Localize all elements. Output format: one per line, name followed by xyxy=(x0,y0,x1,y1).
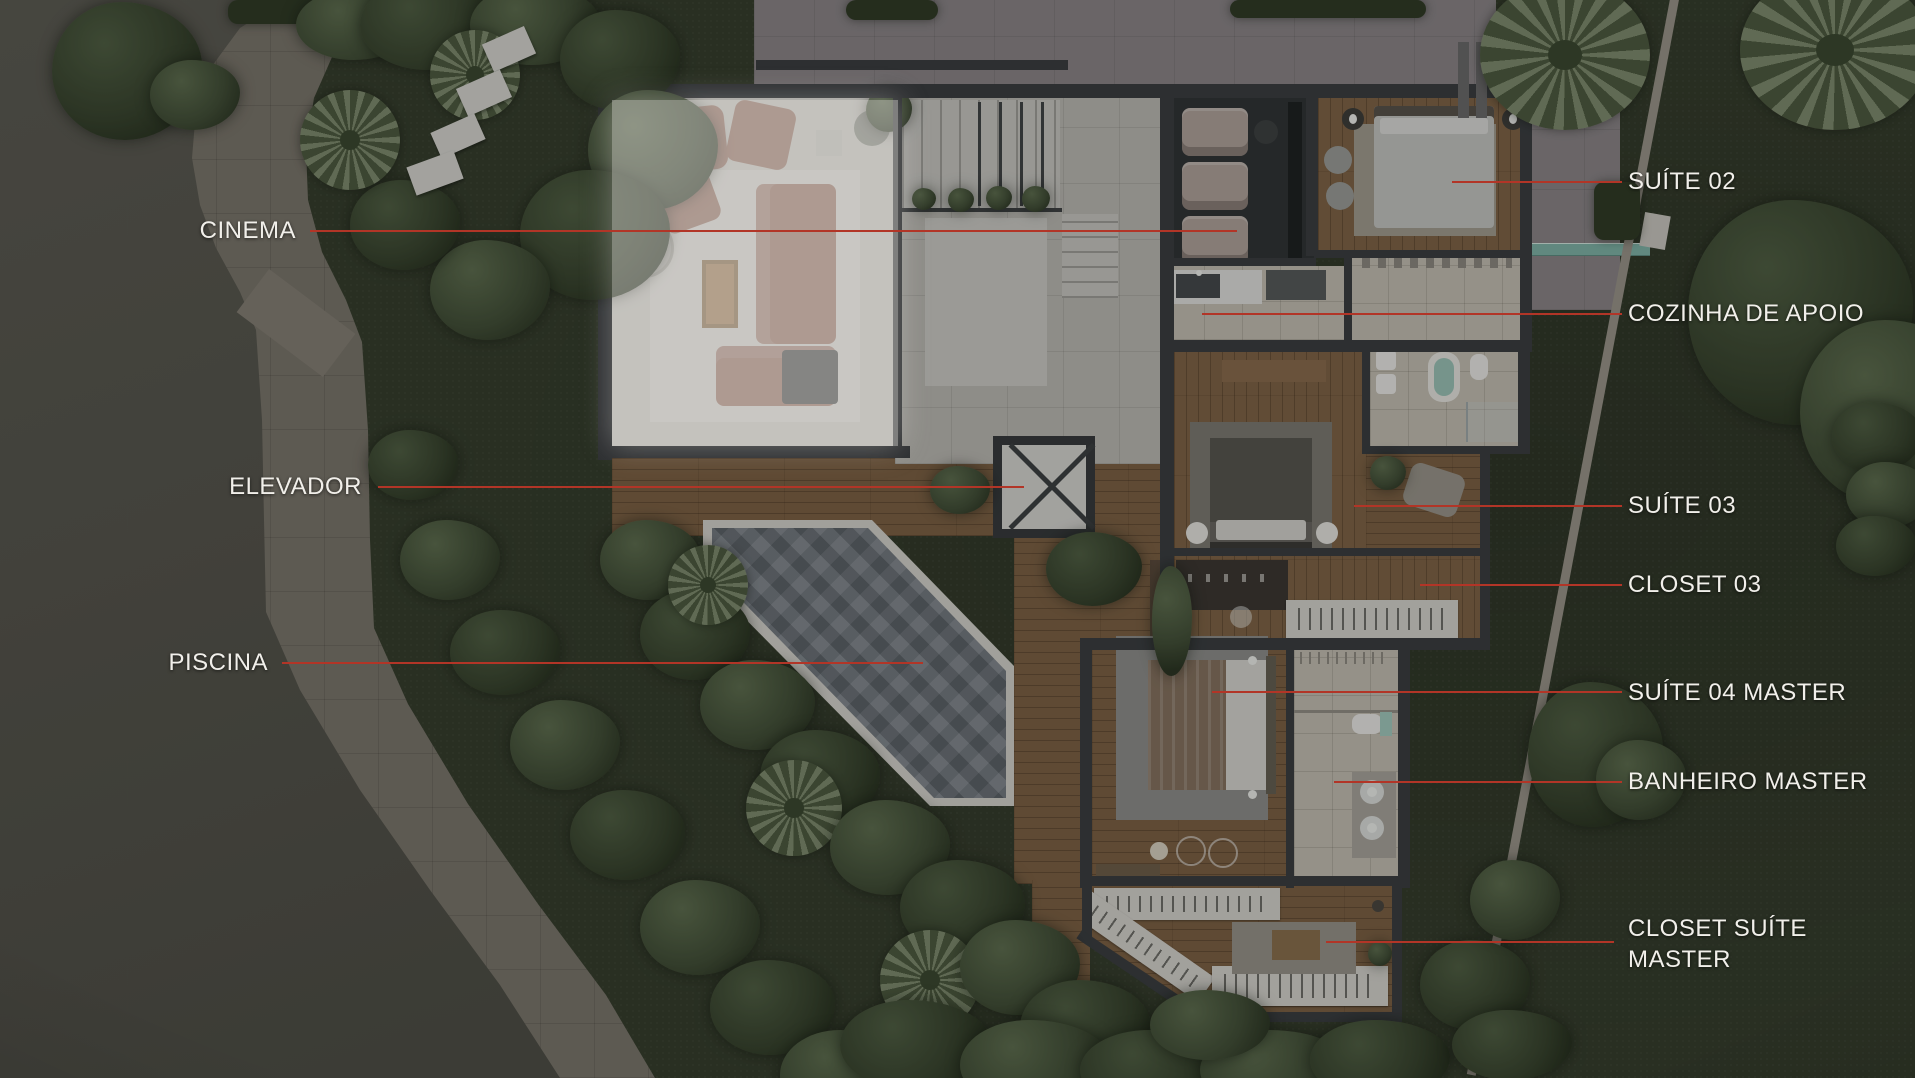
bathtub-water xyxy=(1434,358,1454,396)
accessory xyxy=(1372,900,1384,912)
room-cinema xyxy=(1172,98,1314,268)
leader-line-closet-03 xyxy=(1420,584,1622,586)
nightstand xyxy=(1186,522,1208,544)
ottoman xyxy=(782,350,838,404)
label-elevador: ELEVADOR xyxy=(142,471,362,502)
label-suite-03: SUÍTE 03 xyxy=(1628,490,1736,521)
label-cozinha-de-apoio: COZINHA DE APOIO xyxy=(1628,298,1864,329)
wall xyxy=(1518,340,1530,452)
palm-tree xyxy=(300,90,400,190)
wall xyxy=(1174,548,1486,556)
room-bath-03 xyxy=(1370,346,1526,448)
leader-line-piscina xyxy=(282,662,923,664)
wall xyxy=(1392,876,1402,1018)
wall xyxy=(1398,650,1410,888)
room-master-bath xyxy=(1294,650,1400,886)
label-suite-04-master: SUÍTE 04 MASTER xyxy=(1628,677,1846,708)
pouf xyxy=(1324,146,1352,174)
mattress xyxy=(1226,660,1270,790)
label-piscina: PISCINA xyxy=(68,647,268,678)
hall-suites xyxy=(1350,256,1526,342)
stair-lower-flight xyxy=(1062,214,1118,298)
sconce xyxy=(1248,790,1257,799)
label-banheiro-master: BANHEIRO MASTER xyxy=(1628,766,1868,797)
shelf-items xyxy=(1362,258,1512,268)
wall xyxy=(1160,340,1532,352)
leader-line-elevador xyxy=(378,486,1024,488)
leader-line-cinema xyxy=(310,230,1237,232)
leader-line-suite-03 xyxy=(1354,505,1622,507)
kitchen-sink xyxy=(1176,274,1220,298)
stool xyxy=(1150,842,1168,860)
bed xyxy=(1148,660,1270,790)
hedge xyxy=(846,0,938,20)
wall xyxy=(598,446,910,458)
console xyxy=(1222,360,1326,382)
vanity-desk xyxy=(1176,560,1288,610)
room-suite-04-master xyxy=(1092,650,1286,886)
leader-line-closet-suite-master xyxy=(1326,941,1614,943)
sink xyxy=(1376,350,1396,370)
wall xyxy=(1082,876,1402,886)
pouf xyxy=(1326,182,1354,210)
label-closet-03: CLOSET 03 xyxy=(1628,569,1761,600)
shower xyxy=(1466,402,1522,442)
bed-pillows xyxy=(1380,118,1488,134)
armchair xyxy=(1401,460,1468,519)
cinema-screen-wall xyxy=(1288,102,1302,262)
wardrobe-rack xyxy=(1286,600,1458,638)
bush xyxy=(1836,516,1915,576)
wall xyxy=(1164,258,1316,266)
bed-pillows xyxy=(1216,520,1306,540)
room-support-kitchen xyxy=(1166,266,1344,340)
sofa xyxy=(756,184,836,344)
floor-plan-render: CINEMA ELEVADOR PISCINA SUÍTE 02 COZINHA… xyxy=(0,0,1915,1078)
indoor-plant xyxy=(1368,942,1392,966)
wall xyxy=(1286,650,1294,888)
label-closet-suite-master: CLOSET SUÍTE MASTER xyxy=(1628,913,1848,975)
sink xyxy=(1376,374,1396,394)
gate-pillar xyxy=(1458,42,1469,118)
void-panel xyxy=(925,218,1047,386)
faucet xyxy=(1196,270,1202,276)
toilet xyxy=(1470,354,1488,380)
wall xyxy=(1082,876,1092,938)
wall xyxy=(598,84,1532,98)
recliner-seat xyxy=(1182,108,1248,156)
toilet-lid xyxy=(1380,712,1392,736)
chair xyxy=(1230,606,1252,628)
wall xyxy=(1520,92,1532,348)
hedge xyxy=(1230,0,1426,18)
armchair xyxy=(724,98,798,172)
wall xyxy=(893,98,902,448)
closet-island xyxy=(1272,930,1320,960)
bush xyxy=(1452,1010,1572,1078)
room-closet-03 xyxy=(1174,556,1484,640)
room-suite-02 xyxy=(1318,98,1524,252)
toilet xyxy=(1352,714,1382,734)
chair xyxy=(1208,838,1238,868)
wall xyxy=(1344,258,1352,342)
sink xyxy=(1360,816,1384,840)
label-cinema: CINEMA xyxy=(96,215,296,246)
wall xyxy=(1080,638,1490,650)
headboard xyxy=(1266,656,1276,794)
wall xyxy=(1160,84,1174,350)
appliance xyxy=(1266,270,1326,300)
wall xyxy=(1362,446,1484,454)
wall xyxy=(756,60,1068,70)
leader-line-banheiro-master xyxy=(1334,781,1622,783)
leader-line-suite-02 xyxy=(1452,181,1622,183)
wall xyxy=(1080,638,1092,888)
nightstand xyxy=(1316,522,1338,544)
bush xyxy=(1832,402,1915,472)
side-table xyxy=(816,130,842,156)
recliner-seat xyxy=(1182,162,1248,210)
towel-bars xyxy=(1300,652,1386,664)
sconce xyxy=(1349,114,1357,124)
leader-line-suite-04-master xyxy=(1212,691,1622,693)
chair xyxy=(1176,836,1206,866)
palm-tree xyxy=(668,545,748,625)
palm-tree xyxy=(746,760,842,856)
wall xyxy=(1314,250,1532,258)
side-table xyxy=(1254,120,1278,144)
recliner-seat xyxy=(1182,216,1248,264)
sconce xyxy=(1248,656,1257,665)
wall xyxy=(1306,98,1318,256)
leader-line-cozinha-de-apoio xyxy=(1202,313,1622,315)
duvet xyxy=(1148,660,1226,790)
sink xyxy=(1360,780,1384,804)
label-suite-02: SUÍTE 02 xyxy=(1628,166,1736,197)
wall xyxy=(1362,346,1370,450)
coffee-table xyxy=(702,260,738,328)
room-suite-03 xyxy=(1174,352,1366,556)
